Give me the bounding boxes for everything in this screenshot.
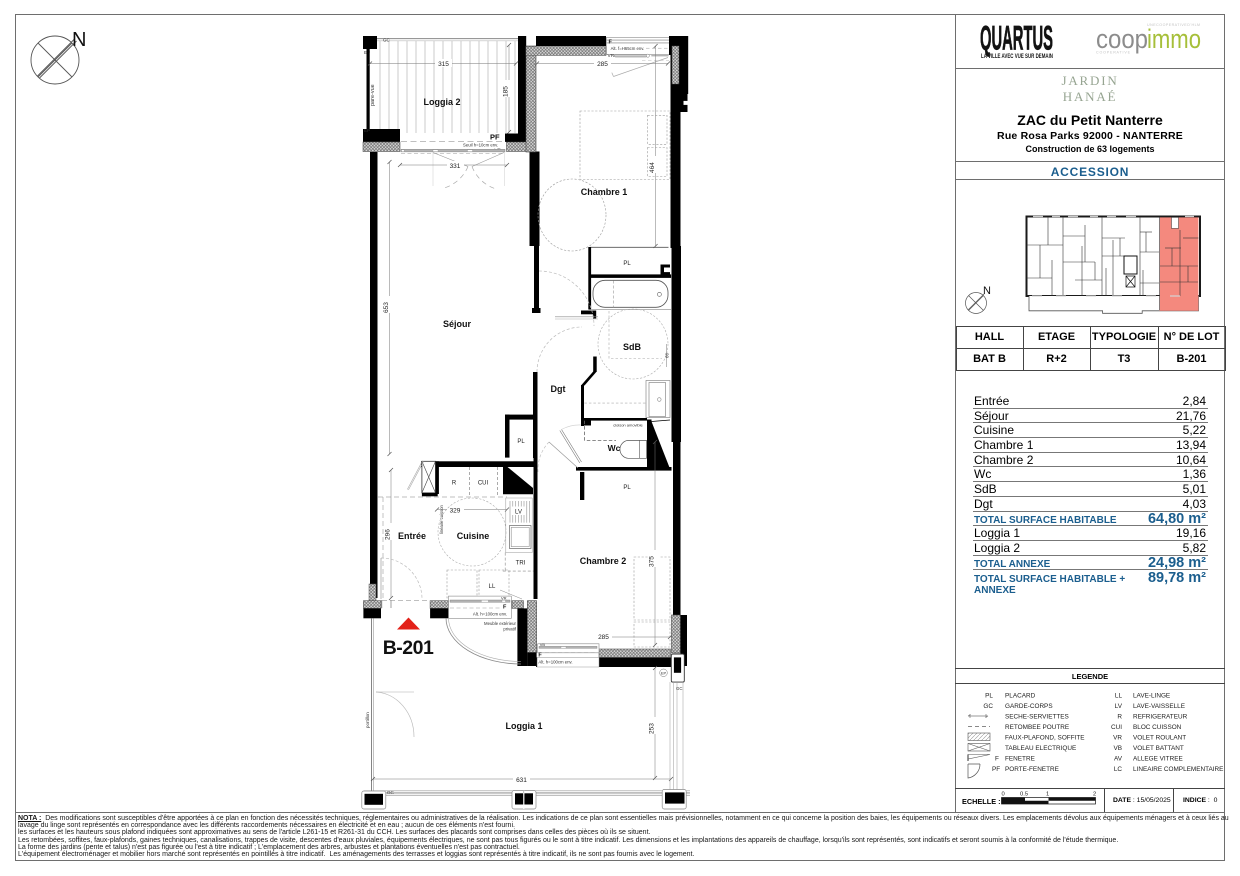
svg-text:VB: VB (1113, 745, 1122, 752)
svg-text:285: 285 (597, 61, 608, 68)
svg-text:Dgt: Dgt (551, 384, 566, 394)
svg-text:SdB: SdB (623, 342, 642, 352)
svg-text:Chambre 1: Chambre 1 (581, 187, 628, 197)
svg-text:B-201: B-201 (383, 637, 434, 659)
svg-text:PL: PL (517, 439, 525, 445)
svg-text:Séjour: Séjour (443, 319, 472, 329)
svg-text:Loggia 2: Loggia 2 (423, 97, 460, 107)
svg-text:GC: GC (383, 38, 391, 43)
svg-text:TRI: TRI (516, 561, 526, 567)
svg-text:EP: EP (364, 128, 370, 133)
svg-text:linéaire cuisson: linéaire cuisson (439, 504, 444, 534)
svg-text:pare-vue: pare-vue (370, 84, 376, 106)
svg-text:PL: PL (623, 485, 631, 491)
svg-text:2: 2 (1093, 792, 1096, 798)
svg-text:BLOC CUISSON: BLOC CUISSON (1133, 724, 1182, 731)
svg-text:253: 253 (649, 723, 656, 734)
svg-text:LL: LL (489, 584, 496, 590)
svg-text:296: 296 (385, 529, 392, 540)
svg-text:464: 464 (649, 162, 656, 173)
svg-text:VR: VR (608, 53, 615, 59)
svg-text:LAVE-VAISSELLE: LAVE-VAISSELLE (1133, 703, 1185, 710)
svg-text:LA VILLE AVEC VUE SUR DEMAIN: LA VILLE AVEC VUE SUR DEMAIN (981, 54, 1053, 60)
svg-text:LL: LL (1115, 693, 1123, 700)
svg-text:CUI: CUI (1111, 724, 1122, 731)
svg-text:PF: PF (992, 766, 1000, 773)
svg-text:Seuil h=10cm env.: Seuil h=10cm env. (463, 143, 498, 148)
svg-text:VR: VR (501, 596, 507, 601)
svg-text:Alt. h=100cm env.: Alt. h=100cm env. (473, 612, 507, 617)
svg-text:375: 375 (649, 556, 656, 567)
svg-text:PL: PL (623, 261, 631, 267)
svg-text:VR: VR (1113, 735, 1122, 742)
svg-text:329: 329 (450, 508, 461, 515)
svg-text:PORTE-FENETRE: PORTE-FENETRE (1005, 766, 1059, 773)
svg-text:0.5: 0.5 (1020, 792, 1028, 798)
svg-text:Wc: Wc (608, 443, 621, 453)
svg-text:VB: VB (540, 642, 546, 647)
svg-text:AV: AV (1114, 756, 1123, 763)
svg-text:LC: LC (1114, 766, 1123, 773)
svg-text:F: F (995, 756, 999, 763)
svg-text:LINEAIRE COMPLEMENTAIRE: LINEAIRE COMPLEMENTAIRE (1133, 766, 1223, 773)
svg-text:immo: immo (1147, 24, 1201, 54)
svg-text:VOLET ROULANT: VOLET ROULANT (1133, 735, 1186, 742)
svg-text:SECHE-SERVIETTES: SECHE-SERVIETTES (1005, 714, 1069, 721)
svg-text:GC: GC (983, 703, 993, 710)
svg-text:LAVE-LINGE: LAVE-LINGE (1133, 693, 1170, 700)
svg-text:PL: PL (985, 693, 993, 700)
svg-text:ALLEGE VITREE: ALLEGE VITREE (1133, 756, 1183, 763)
svg-text:N: N (983, 285, 991, 297)
svg-text:TABLEAU ELECTRIQUE: TABLEAU ELECTRIQUE (1005, 745, 1076, 752)
svg-text:185: 185 (503, 86, 510, 97)
svg-text:Loggia 1: Loggia 1 (505, 721, 542, 731)
svg-text:FENETRE: FENETRE (1005, 756, 1035, 763)
svg-text:GC: GC (387, 790, 395, 795)
svg-text:R: R (452, 481, 457, 487)
svg-text:315: 315 (438, 61, 449, 68)
svg-text:Cuisine: Cuisine (457, 531, 490, 541)
svg-text:LV: LV (1115, 703, 1123, 710)
svg-text:CUI: CUI (478, 481, 489, 487)
svg-text:1: 1 (1046, 792, 1049, 798)
svg-text:GC: GC (676, 686, 682, 691)
svg-text:coop: coop (1096, 24, 1148, 54)
svg-text:RETOMBEE POUTRE: RETOMBEE POUTRE (1005, 724, 1069, 731)
svg-text:REFRIGERATEUR: REFRIGERATEUR (1133, 714, 1188, 721)
svg-text:285: 285 (598, 634, 609, 641)
svg-text:PF: PF (490, 133, 500, 142)
svg-text:QUARTUS: QUARTUS (980, 20, 1053, 58)
svg-text:Meuble extérieur: Meuble extérieur (484, 621, 517, 626)
svg-text:R: R (1117, 714, 1122, 721)
svg-text:C O O P E R A T I V E: C O O P E R A T I V E (1096, 51, 1131, 55)
svg-text:Chambre 2: Chambre 2 (580, 556, 627, 566)
svg-text:privatif: privatif (503, 627, 516, 632)
svg-text:EP: EP (661, 671, 667, 676)
svg-text:Entrée: Entrée (398, 531, 426, 541)
svg-text:653: 653 (383, 302, 390, 313)
svg-text:FAUX-PLAFOND, SOFFITE: FAUX-PLAFOND, SOFFITE (1005, 735, 1085, 742)
svg-text:0: 0 (1002, 792, 1005, 798)
svg-text:631: 631 (516, 777, 527, 784)
svg-text:portillon: portillon (365, 712, 370, 728)
svg-text:GARDE-CORPS: GARDE-CORPS (1005, 703, 1053, 710)
svg-text:Alt. h=100cm env.: Alt. h=100cm env. (538, 660, 572, 665)
svg-text:cloison amovible: cloison amovible (613, 423, 643, 428)
svg-text:331: 331 (450, 163, 461, 170)
svg-text:66: 66 (665, 352, 670, 358)
svg-text:Alt. f=H65cm env.: Alt. f=H65cm env. (611, 46, 645, 51)
svg-text:VOLET BATTANT: VOLET BATTANT (1133, 745, 1184, 752)
svg-text:LV: LV (515, 510, 522, 516)
svg-text:PLACARD: PLACARD (1005, 693, 1036, 700)
